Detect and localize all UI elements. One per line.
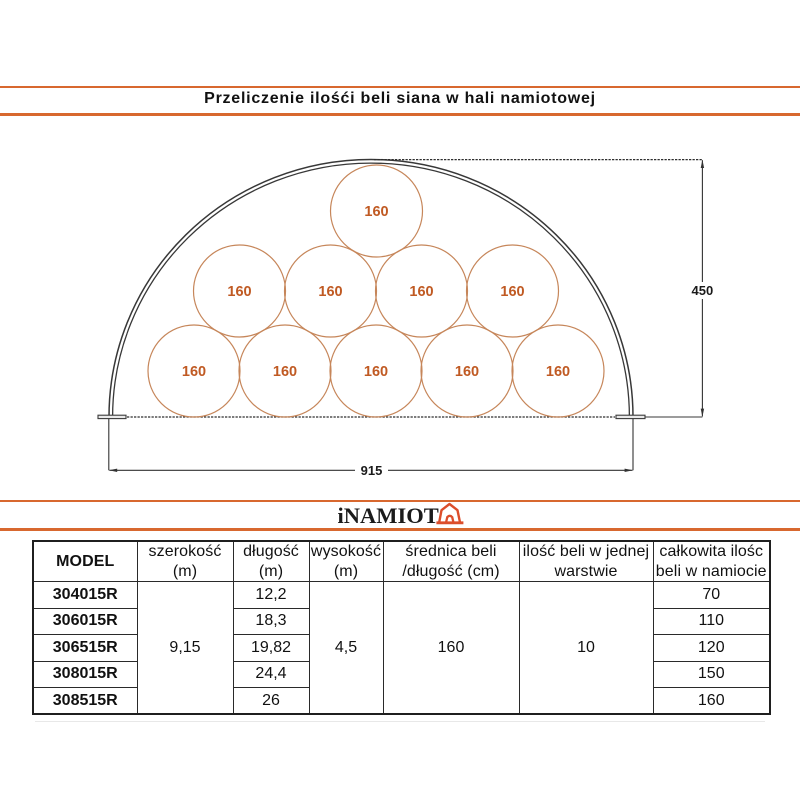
svg-text:160: 160: [182, 364, 206, 380]
svg-text:160: 160: [546, 364, 570, 380]
svg-text:160: 160: [409, 284, 433, 300]
svg-text:160: 160: [364, 204, 388, 220]
svg-text:450: 450: [692, 283, 714, 298]
svg-text:160: 160: [500, 284, 524, 300]
svg-text:160: 160: [273, 364, 297, 380]
svg-text:160: 160: [364, 364, 388, 380]
svg-text:160: 160: [318, 284, 342, 300]
svg-text:160: 160: [227, 284, 251, 300]
svg-text:915: 915: [361, 463, 383, 478]
svg-text:160: 160: [455, 364, 479, 380]
